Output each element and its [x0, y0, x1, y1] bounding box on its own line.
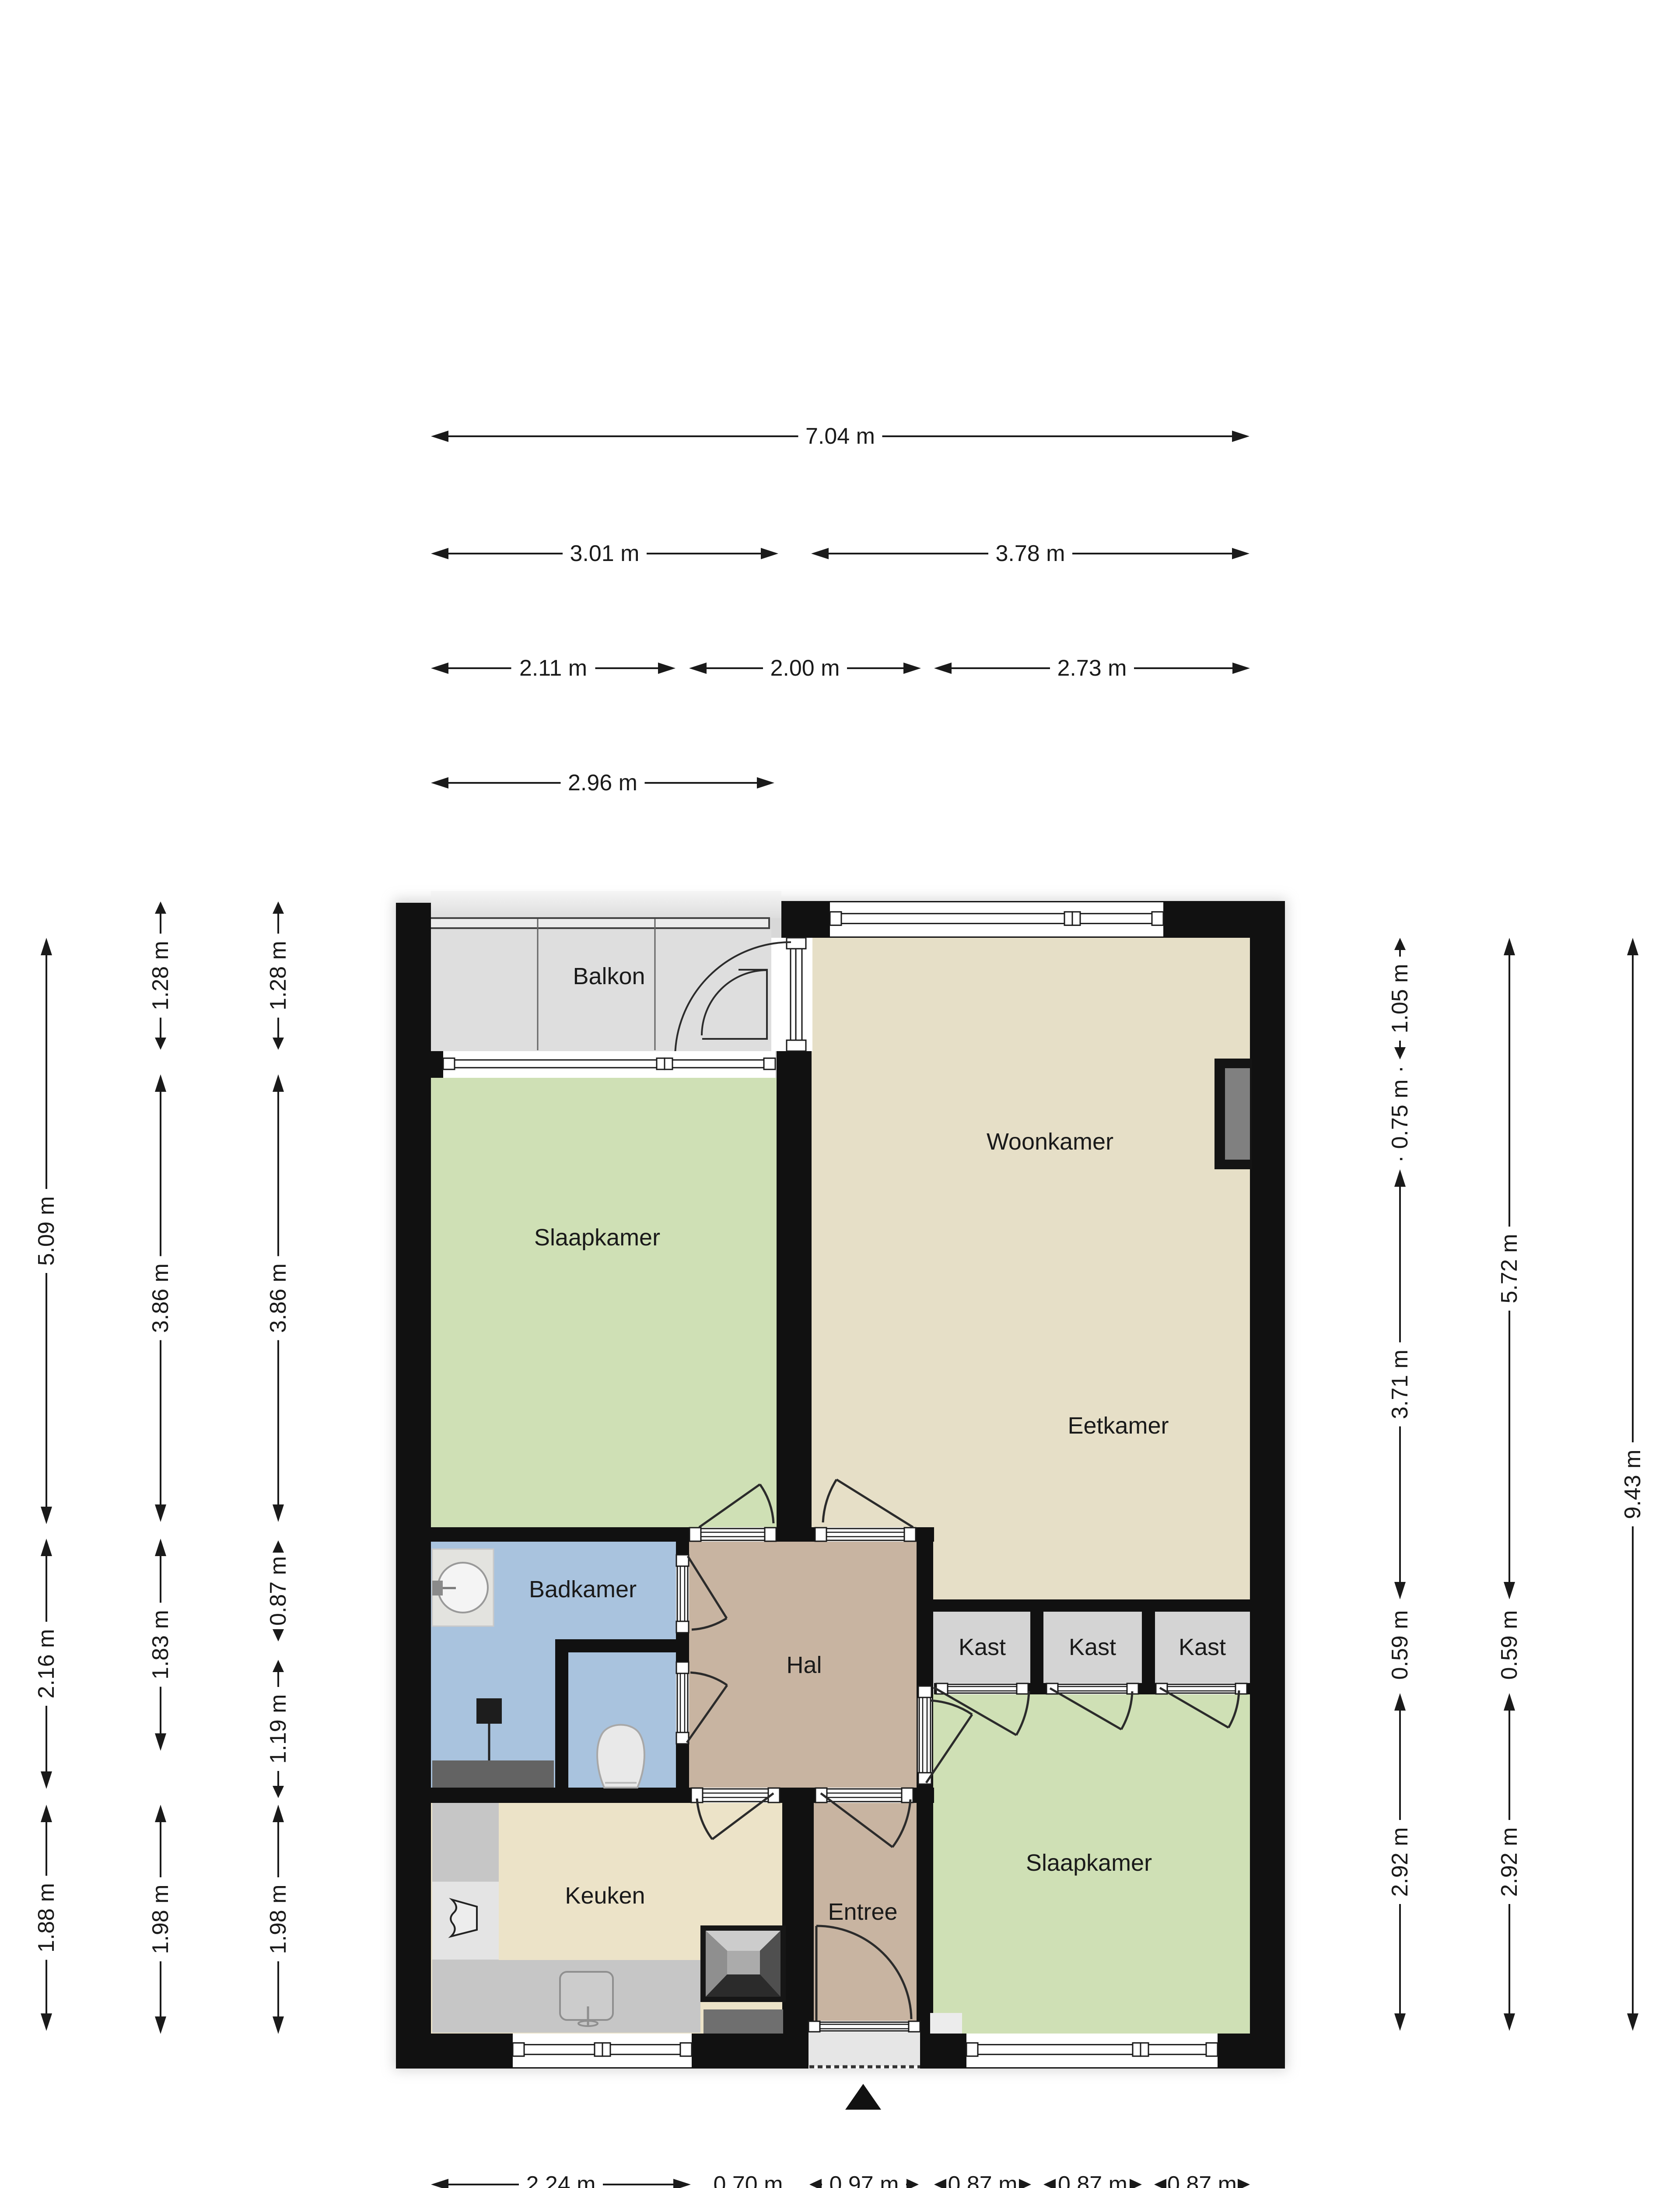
svg-text:1.28 m: 1.28 m — [266, 941, 291, 1010]
svg-text:0.59 m: 0.59 m — [1497, 1610, 1522, 1680]
svg-text:2.73 m: 2.73 m — [1057, 656, 1127, 681]
svg-text:Woonkamer: Woonkamer — [987, 1129, 1113, 1155]
svg-text:3.71 m: 3.71 m — [1387, 1350, 1413, 1419]
svg-text:1.88 m: 1.88 m — [34, 1883, 59, 1953]
svg-text:1.98 m: 1.98 m — [148, 1885, 173, 1954]
svg-text:2.16 m: 2.16 m — [34, 1629, 59, 1699]
svg-text:3.78 m: 3.78 m — [996, 541, 1065, 566]
svg-text:0.87 m: 0.87 m — [948, 2172, 1018, 2188]
svg-text:0.87 m: 0.87 m — [1167, 2172, 1237, 2188]
svg-text:1.98 m: 1.98 m — [266, 1885, 291, 1954]
svg-text:9.43 m: 9.43 m — [1620, 1450, 1645, 1519]
svg-text:7.04 m: 7.04 m — [805, 424, 875, 449]
svg-text:3.86 m: 3.86 m — [266, 1263, 291, 1333]
svg-text:0.87 m: 0.87 m — [266, 1556, 291, 1626]
svg-text:1.83 m: 1.83 m — [148, 1610, 173, 1680]
svg-text:2.11 m: 2.11 m — [519, 656, 587, 681]
svg-text:5.09 m: 5.09 m — [34, 1196, 59, 1266]
svg-text:Slaapkamer: Slaapkamer — [1026, 1850, 1152, 1876]
svg-text:0.87 m: 0.87 m — [1058, 2172, 1127, 2188]
svg-text:Kast: Kast — [1069, 1634, 1116, 1660]
svg-text:2.92 m: 2.92 m — [1497, 1827, 1522, 1897]
svg-text:Balkon: Balkon — [573, 963, 645, 989]
svg-text:· 0.75 m ·: · 0.75 m · — [1387, 1066, 1413, 1163]
svg-text:1.28 m: 1.28 m — [148, 941, 173, 1010]
svg-text:0.70 m: 0.70 m — [714, 2172, 783, 2188]
svg-text:Entree: Entree — [828, 1899, 897, 1925]
svg-text:5.72 m: 5.72 m — [1497, 1234, 1522, 1304]
svg-text:Kast: Kast — [1179, 1634, 1226, 1660]
svg-text:1.05 m: 1.05 m — [1387, 964, 1413, 1034]
svg-text:3.86 m: 3.86 m — [148, 1263, 173, 1333]
svg-text:2.92 m: 2.92 m — [1387, 1827, 1413, 1897]
svg-text:2.24 m: 2.24 m — [526, 2172, 596, 2188]
svg-text:2.00 m: 2.00 m — [770, 656, 840, 681]
svg-text:Badkamer: Badkamer — [529, 1576, 637, 1602]
svg-text:Hal: Hal — [786, 1652, 822, 1678]
svg-text:Keuken: Keuken — [565, 1883, 645, 1909]
svg-text:Kast: Kast — [959, 1634, 1006, 1660]
svg-text:Slaapkamer: Slaapkamer — [534, 1224, 660, 1251]
svg-text:1.19 m: 1.19 m — [266, 1694, 291, 1764]
svg-text:2.96 m: 2.96 m — [568, 770, 637, 796]
svg-text:3.01 m: 3.01 m — [570, 541, 640, 566]
svg-text:0.59 m: 0.59 m — [1387, 1610, 1413, 1680]
svg-text:Eetkamer: Eetkamer — [1067, 1413, 1169, 1439]
svg-text:0.97 m: 0.97 m — [829, 2172, 899, 2188]
